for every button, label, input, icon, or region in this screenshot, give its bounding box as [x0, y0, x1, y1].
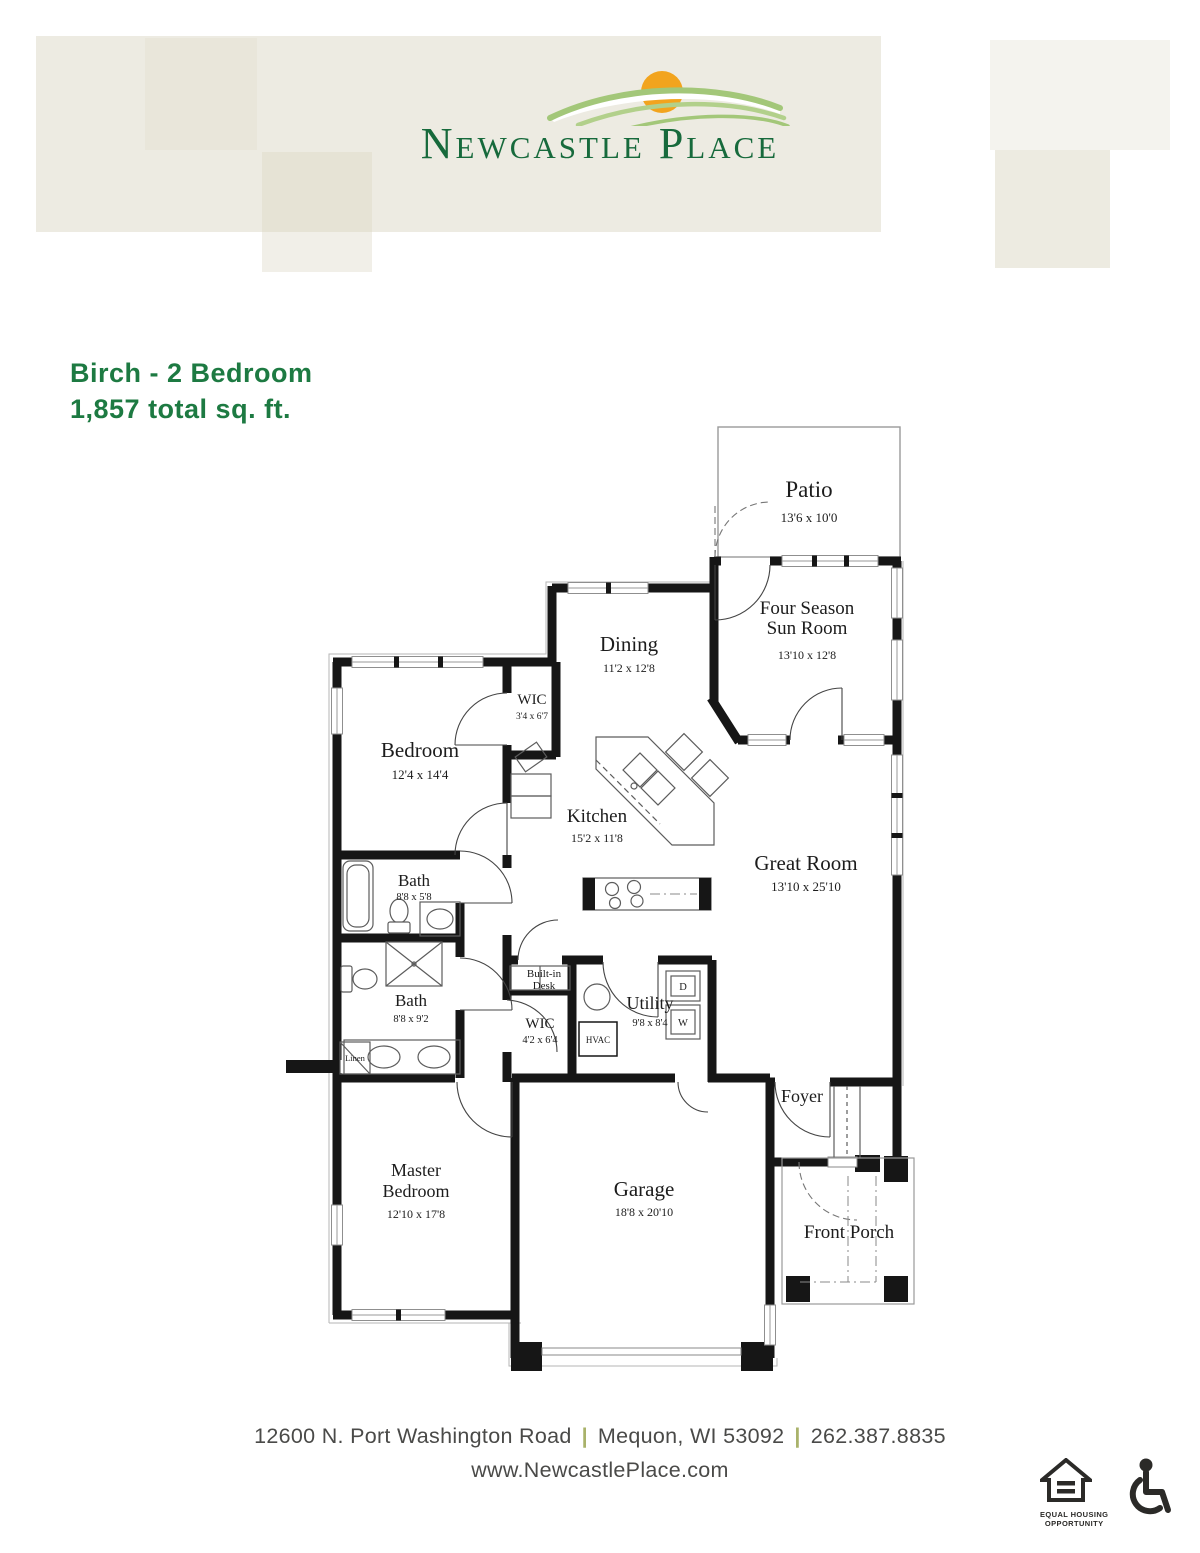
walls [286, 557, 908, 1371]
footer-address: 12600 N. Port Washington Road [254, 1424, 571, 1448]
room-label-patio: Patio [785, 477, 832, 502]
room-label-greatroom: Great Room [754, 851, 857, 875]
equal-housing-badge: EQUAL HOUSING OPPORTUNITY [1040, 1458, 1108, 1528]
logo-sun-swoosh-icon [530, 66, 790, 126]
footer-city: Mequon, WI 53092 [598, 1424, 784, 1448]
header-block [995, 150, 1110, 268]
label-desk-1: Built-in [527, 968, 562, 980]
room-dims-patio: 13'6 x 10'0 [781, 510, 838, 525]
room-dims-wic2: 4'2 x 6'4 [522, 1035, 558, 1046]
room-label-master-2: Bedroom [383, 1181, 450, 1201]
header-block [990, 40, 1170, 150]
equal-housing-text-2: OPPORTUNITY [1040, 1519, 1108, 1528]
footer-separator: | [572, 1424, 598, 1448]
room-label-utility: Utility [626, 993, 673, 1013]
logo-wordmark: Newcastle Place [400, 118, 800, 169]
plan-name: Birch - 2 Bedroom [70, 355, 313, 391]
room-dims-wic1: 3'4 x 6'7 [516, 712, 548, 722]
room-label-sunroom-2: Sun Room [767, 618, 848, 639]
room-dims-kitchen: 15'2 x 11'8 [571, 831, 623, 845]
wheelchair-accessibility-icon [1124, 1458, 1174, 1520]
plan-title: Birch - 2 Bedroom 1,857 total sq. ft. [70, 355, 313, 427]
room-dims-sunroom: 13'10 x 12'8 [778, 648, 836, 662]
room-dims-garage: 18'8 x 20'10 [615, 1205, 673, 1219]
room-dims-utility: 9'8 x 8'4 [632, 1018, 668, 1029]
label-washer: W [678, 1018, 688, 1029]
room-dims-bath2: 8'8 x 9'2 [393, 1014, 428, 1025]
room-dims-bedroom: 12'4 x 14'4 [392, 767, 449, 782]
sink-bath1 [420, 902, 460, 936]
utility-sink [584, 984, 610, 1010]
equal-housing-icon [1040, 1458, 1092, 1502]
label-linen: Linen [345, 1053, 366, 1063]
room-label-dining: Dining [600, 632, 659, 656]
room-label-foyer: Foyer [781, 1086, 823, 1106]
floor-plan: Patio 13'6 x 10'0 Four Season Sun Room 1… [280, 415, 930, 1400]
flyer-page: Newcastle Place Birch - 2 Bedroom 1,857 … [0, 0, 1200, 1553]
footer-badges: EQUAL HOUSING OPPORTUNITY [1040, 1458, 1174, 1528]
header-block [262, 152, 372, 232]
footer-phone: 262.387.8835 [811, 1424, 946, 1448]
kitchen-counter-range [583, 878, 711, 910]
footer-website: www.NewcastlePlace.com [0, 1458, 1200, 1483]
kitchen-island [596, 734, 728, 845]
equal-housing-text-1: EQUAL HOUSING [1040, 1510, 1108, 1519]
room-label-wic1: WIC [517, 692, 546, 708]
label-desk-2: Desk [533, 980, 556, 992]
toilet-bath2 [341, 966, 377, 992]
label-dryer: D [679, 982, 687, 993]
room-dims-bath1: 8'8 x 5'8 [396, 892, 431, 903]
label-hvac: HVAC [586, 1035, 610, 1045]
room-dims-master: 12'10 x 17'8 [387, 1207, 445, 1221]
footer: 12600 N. Port Washington Road|Mequon, WI… [0, 1424, 1200, 1483]
room-label-kitchen: Kitchen [567, 806, 628, 827]
garage-door [542, 1348, 741, 1355]
header-block [145, 38, 257, 150]
footer-separator: | [784, 1424, 810, 1448]
room-label-master-1: Master [391, 1160, 441, 1180]
shower [386, 942, 442, 986]
toilet-bath1 [388, 899, 410, 933]
room-label-garage: Garage [614, 1177, 675, 1201]
room-label-bedroom: Bedroom [381, 738, 459, 762]
plan-sqft: 1,857 total sq. ft. [70, 391, 313, 427]
header-block [262, 232, 372, 272]
foyer-closet [834, 1086, 860, 1158]
room-label-bath1: Bath [398, 871, 431, 890]
room-dims-dining: 11'2 x 12'8 [603, 661, 655, 675]
room-label-sunroom-1: Four Season [760, 598, 855, 619]
footer-contact-line: 12600 N. Port Washington Road|Mequon, WI… [0, 1424, 1200, 1449]
room-dims-greatroom: 13'10 x 25'10 [771, 879, 841, 894]
bathtub [343, 861, 373, 931]
room-label-bath2: Bath [395, 991, 428, 1010]
room-label-frontporch: Front Porch [804, 1222, 895, 1243]
room-label-wic2: WIC [525, 1016, 554, 1032]
